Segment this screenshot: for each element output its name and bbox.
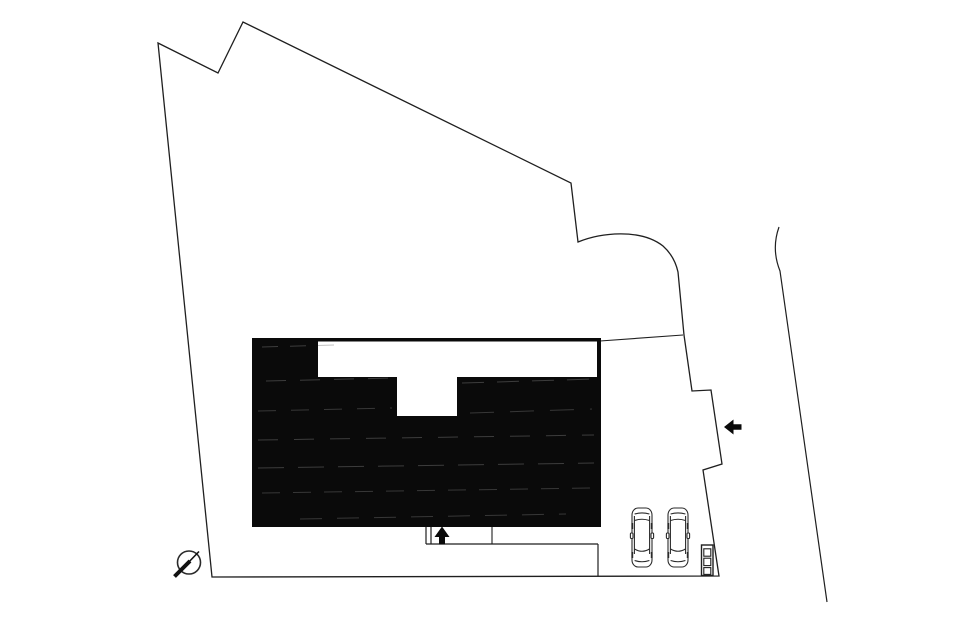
site-plan-canvas bbox=[0, 0, 965, 629]
parked-car bbox=[666, 508, 689, 567]
site-access-arrow-left bbox=[724, 420, 742, 435]
building-notch-stem bbox=[397, 377, 457, 416]
road-edge-line bbox=[775, 227, 827, 602]
building-notch-top bbox=[318, 342, 597, 378]
utility-pole-slash-thin bbox=[185, 552, 199, 567]
shapes-layer bbox=[158, 22, 827, 602]
parked-car bbox=[630, 508, 653, 567]
boundary-connector-line bbox=[600, 335, 683, 341]
entrance-arrow-up bbox=[435, 527, 450, 545]
site-plan-drawing bbox=[0, 0, 965, 629]
